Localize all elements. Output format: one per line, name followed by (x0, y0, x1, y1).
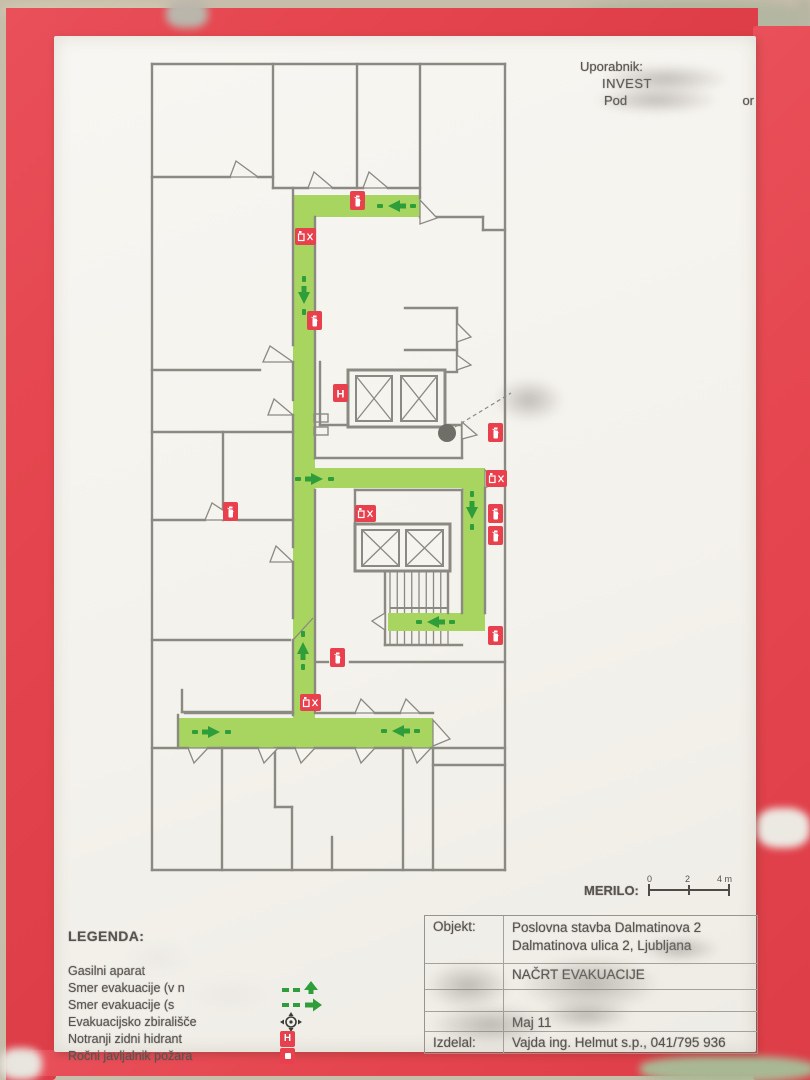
floor-plan-svg: H (150, 62, 512, 872)
door-swing (270, 546, 293, 562)
door-swing (295, 748, 315, 763)
floor-plan: H (150, 62, 512, 872)
legend-item: Gasilni aparat (68, 962, 368, 979)
tape-wear-patch (640, 1056, 810, 1080)
wall-hydrant-icon: H (333, 384, 348, 402)
svg-text:2: 2 (685, 874, 690, 884)
scale-ruler-icon: 0 2 4 m (643, 872, 735, 898)
evacuation-route (293, 468, 485, 488)
fire-extinguisher-icon (488, 526, 503, 545)
legend-item: Ročni javljalnik požara (68, 1047, 368, 1064)
manual-fire-alarm-icon (355, 505, 376, 522)
door-swing (355, 748, 375, 763)
censor-smudge (128, 942, 188, 974)
manual-fire-alarm-icon (486, 470, 507, 487)
tape-wear-patch (756, 808, 810, 848)
manual-fire-alarm-icon (300, 694, 321, 711)
tape-wear-patch (0, 1048, 42, 1080)
censor-smudge (540, 1000, 632, 1030)
scale-label: MERILO: (584, 883, 639, 898)
manual-fire-alarm-icon (280, 1047, 295, 1064)
door-swing (400, 699, 420, 713)
legend-item: Notranji zidni hidrant H (68, 1030, 368, 1047)
evacuation-arrow-up-icon (280, 979, 326, 996)
door-swing (268, 399, 293, 415)
censor-smudge (592, 86, 720, 114)
location-marker (438, 424, 456, 442)
photographed-evacuation-plan: H Uporabnik: INVEST Pod or MERILO: 0 2 4… (0, 0, 810, 1080)
fire-extinguisher-icon (307, 311, 322, 330)
door-swing (457, 355, 471, 370)
door-swing (230, 161, 258, 177)
evacuation-arrow-right-icon (280, 996, 326, 1013)
fire-extinguisher-icon (330, 648, 345, 667)
door-swing (188, 748, 208, 763)
legend-title: LEGENDA: (68, 928, 368, 944)
stairs (390, 570, 448, 645)
censor-smudge (186, 978, 274, 1012)
manual-fire-alarm-icon (295, 228, 316, 245)
door-swing (372, 613, 385, 630)
censor-smudge (494, 378, 564, 422)
fire-extinguisher-icon (488, 626, 503, 645)
title-row-label: Objekt: (425, 916, 504, 963)
svg-text:0: 0 (647, 874, 652, 884)
door-swing (462, 422, 477, 439)
censor-smudge (426, 962, 510, 1010)
legend-item: Evakuacijsko zbirališče (68, 1013, 368, 1030)
assembly-point-icon (280, 1013, 302, 1030)
door-swing (457, 323, 471, 342)
elevator-icon (355, 524, 450, 571)
tape-wear-patch (166, 0, 208, 28)
fire-extinguisher-icon (488, 504, 503, 523)
elevator-icon (348, 370, 445, 427)
wall-hydrant-icon: H (280, 1030, 295, 1047)
door-swing (308, 172, 333, 188)
scale-bar: MERILO: 0 2 4 m (584, 872, 735, 898)
door-swing (263, 346, 293, 362)
door-swing (433, 720, 450, 746)
fire-extinguisher-icon (488, 423, 503, 442)
censor-smudge (640, 936, 720, 962)
fire-extinguisher-icon (223, 502, 238, 521)
door-swing (355, 699, 375, 713)
svg-text:4 m: 4 m (717, 874, 732, 884)
svg-text:H: H (337, 389, 345, 401)
door-swing (411, 748, 431, 763)
censor-smudge (430, 1004, 550, 1046)
title-row-value: Poslovna stavba Dalmatinova 2 Dalmatinov… (504, 916, 757, 963)
fire-extinguisher-icon (350, 191, 365, 210)
red-tape-left (6, 8, 56, 1080)
door-swing (420, 200, 437, 224)
door-swing (363, 172, 388, 188)
red-tape-right (753, 26, 810, 1080)
